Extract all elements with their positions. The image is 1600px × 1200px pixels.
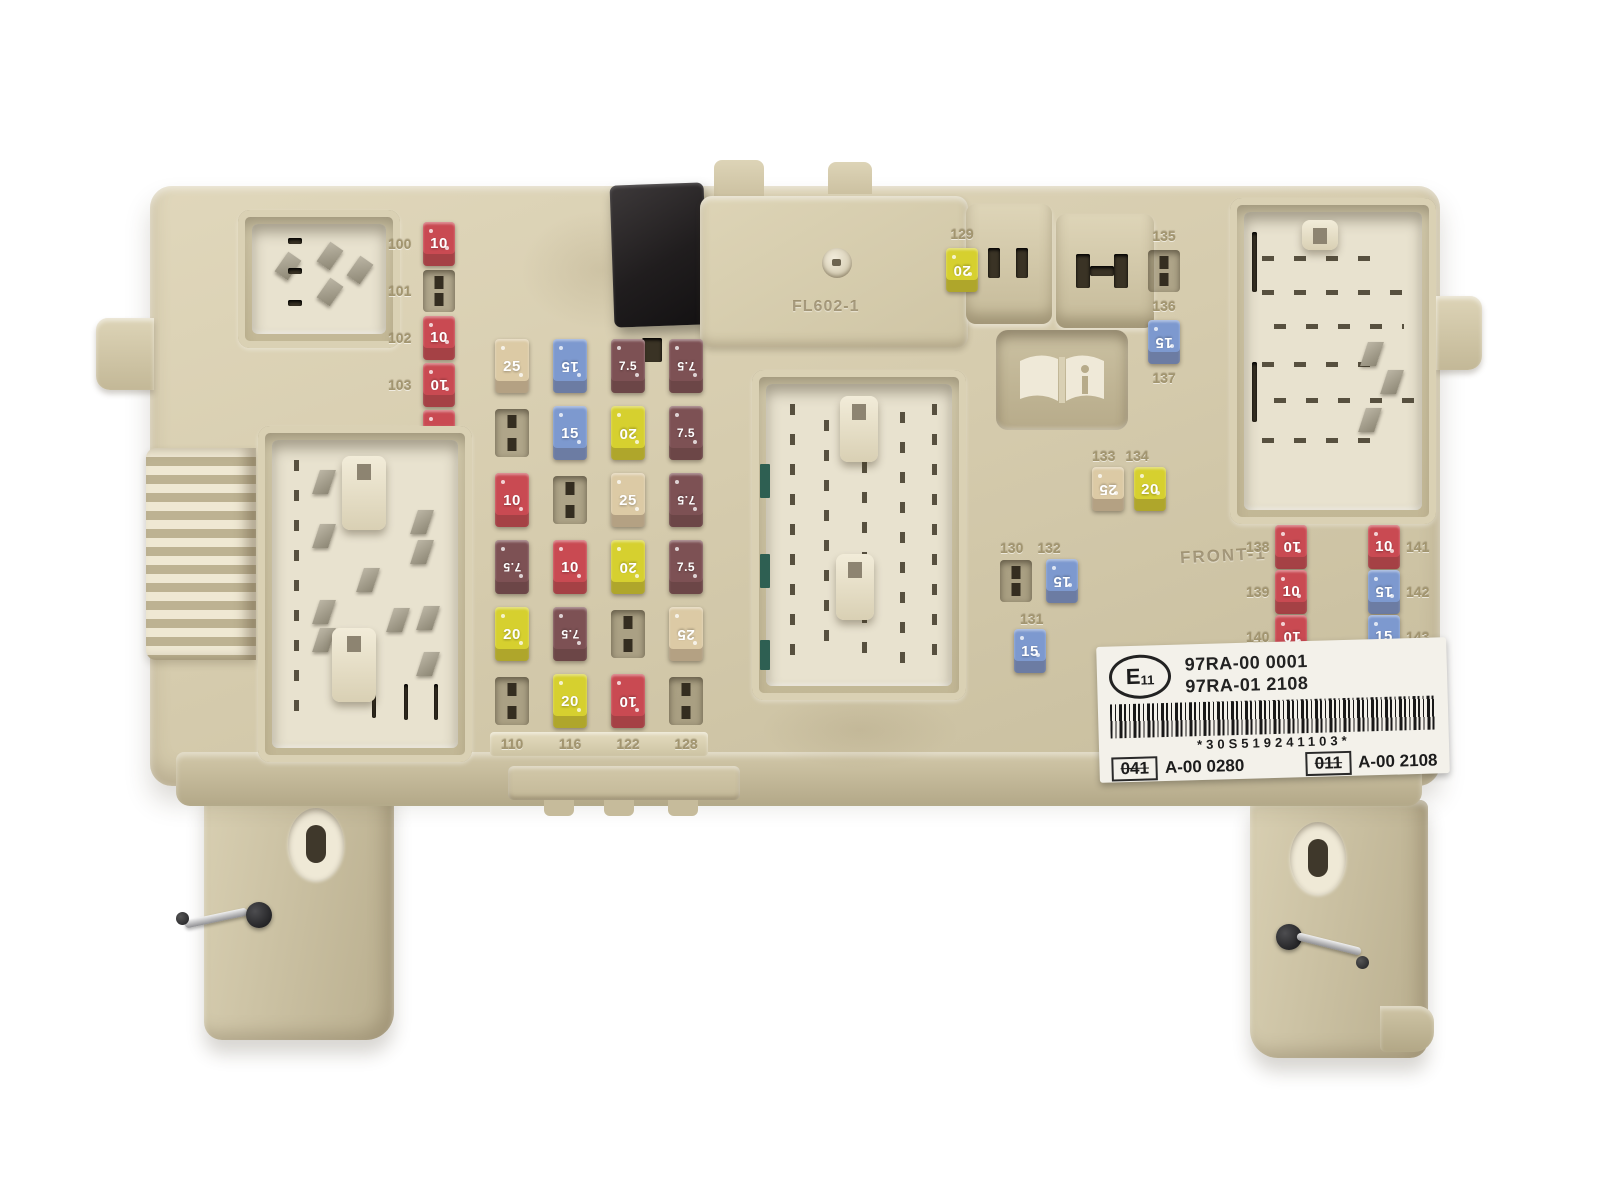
fuse-slot: 20 [606,405,650,461]
keyhole-slot [288,808,344,880]
terminal-pin-column [294,460,299,730]
relay-black-block [610,182,709,327]
fuse-slot: 101 [388,267,455,314]
fuse-7.5A: 7.5 [669,473,703,527]
fuse-mount: 15 [1014,629,1046,673]
socket-recess [1244,212,1422,510]
terminal-pin [386,608,410,632]
fuse-cluster-130-132: 130 132 15 131 15 [1000,540,1078,673]
fuse-10A: 10 [495,473,529,527]
terminal-pin-row [1262,256,1372,261]
code-value: A-00 0280 [1165,756,1245,778]
connector-socket-center [752,370,966,700]
fuse-15A: 15 [553,406,587,460]
pcb-edge [760,464,770,498]
fuse-slot: 139 10 [1246,569,1307,614]
terminal-pin [317,242,344,271]
fuse-slot: 102 10 [388,314,455,361]
fuse-slot: 7.5 [664,338,708,394]
terminal-slot [1016,248,1028,278]
fuse-20A: 20 [1134,467,1166,511]
fuse-number-label: 102 [388,330,418,346]
terminal-pin [312,470,336,494]
fuse-slot [606,606,650,662]
terminal-slot [1252,362,1257,422]
housing-foot [544,800,574,816]
terminal-pin [347,256,374,285]
molded-code-text: FL602-1 [792,298,859,316]
pcb-edge [760,554,770,588]
terminal-pin-column [900,412,905,664]
terminal-pin [410,510,434,534]
fuse-mount: 10 [423,363,455,407]
fuse-mount: 10 [1368,525,1400,569]
fuse-slot: 25 [490,338,534,394]
latch-tower [836,554,874,620]
fuse-10A: 10 [423,316,455,360]
mounting-bracket-left [204,786,394,1040]
terminal-slot [288,268,302,274]
fuse-cluster-135-137: 135 136 15 137 [1148,228,1180,386]
code-box: 041 [1111,756,1158,781]
fuse-15A: 15 [553,339,587,393]
connector-socket-left [258,426,472,762]
bracket-foot [1380,1006,1434,1052]
fuse-slot: 20 [606,539,650,595]
terminal-pin-row [1262,362,1372,367]
fuse-slot: 7.5 [664,539,708,595]
fuse-slot: 103 10 [388,361,455,408]
fuse-mount: 20 [1134,467,1166,511]
fuse-slot: 25 [606,472,650,528]
socket-recess [252,224,386,334]
fuse-number-label: 133 [1092,448,1115,464]
fuse-slot: 10 [548,539,592,595]
fuse-slot: 10 141 [1368,524,1429,569]
terminal-pin [356,568,380,592]
fuse-cluster-129: 129 20 [946,226,978,292]
empty-fuse-slot [1000,560,1032,602]
terminal-slot [434,684,438,720]
main-fuse-grid: 25157.57.515207.510257.57.510207.5207.52… [490,338,708,729]
terminal-pin [1380,370,1404,394]
connector-socket-top-left [238,210,400,348]
fuse-number-label: 131 [1020,611,1043,627]
empty-fuse-slot [669,677,703,725]
terminal-pin [1358,408,1382,432]
housing-foot [604,800,634,816]
metal-pin-shaft [184,907,248,928]
keyhole-slot [1290,822,1346,894]
terminal-slot [288,238,302,244]
terminal-pin-row [1262,438,1382,443]
fuse-7.5A: 7.5 [611,339,645,393]
fuse-20A: 20 [553,674,587,728]
fuse-cluster-100-104: 100 10 101 102 10 103 10 104 10 [388,220,455,455]
fuse-mount [1148,250,1180,292]
fuse-number-label: 130 [1000,540,1023,556]
keyhole-opening [1308,839,1328,877]
rivet-screw [822,248,852,278]
side-ear-left [96,318,154,390]
fuse-slot: 100 10 [388,220,455,267]
terminal-pin-column [932,404,937,668]
code-pair-right: 011 A-00 2108 [1305,748,1437,776]
top-tab [714,160,764,196]
terminal-slot [1114,254,1128,288]
latch-tower [332,628,376,702]
identification-sticker: E 11 97RA-00 0001 97RA-01 2108 *30S51924… [1096,637,1450,783]
fuse-25A: 25 [1092,467,1124,511]
fuse-number-label: 136 [1152,298,1175,314]
e-mark-number: 11 [1140,672,1154,687]
terminal-pin-row [1274,324,1404,329]
pcb-edge [760,640,770,670]
relay-socket-tower [1056,214,1154,328]
fuse-25A: 25 [611,473,645,527]
fuse-slot: 10 [606,673,650,729]
cover-plate: FL602-1 [700,196,968,348]
keyhole-opening [306,825,326,863]
metal-pin-shaft [1296,932,1362,956]
fuse-number-label: 122 [606,736,650,752]
empty-fuse-slot [423,270,455,312]
terminal-pin-column [862,432,867,660]
fuse-number-label: 135 [1152,228,1175,244]
fuse-slot: 10 [490,472,534,528]
fuse-slot [490,405,534,461]
empty-fuse-slot [495,677,529,725]
fuse-number-label: 101 [388,283,418,299]
fuse-slot [490,673,534,729]
housing-foot [668,800,698,816]
fuse-mount [423,270,455,312]
e-mark-letter: E [1125,664,1140,690]
code-value: A-00 2108 [1358,750,1438,772]
fuse-10A: 10 [1368,525,1400,569]
fuse-15A: 15 [1046,559,1078,603]
fuse-mount [1000,560,1032,602]
metal-pin-head [246,902,272,928]
fuse-7.5A: 7.5 [495,540,529,594]
fuse-10A: 10 [423,222,455,266]
fuse-slot: 25 [664,606,708,662]
fuse-number-label: 110 [490,736,534,752]
fuse-10A: 10 [1275,570,1307,614]
fuse-mount: 10 [1275,570,1307,614]
fuse-mount: 10 [1275,525,1307,569]
fuse-number-label: 137 [1152,370,1175,386]
code-pair-left: 041 A-00 0280 [1111,754,1244,782]
fuse-slot: 15 [548,405,592,461]
fuse-20A: 20 [495,607,529,661]
terminal-slot [1252,232,1257,292]
fuse-7.5A: 7.5 [669,406,703,460]
fuse-mount: 15 [1368,570,1400,614]
fuse-mount: 10 [423,316,455,360]
terminal-pin [416,652,440,676]
empty-fuse-slot [495,409,529,457]
terminal-pin [312,524,336,548]
fuse-7.5A: 7.5 [669,339,703,393]
fuse-25A: 25 [495,339,529,393]
relay-socket-tower [966,204,1052,324]
fuse-slot: 7.5 [664,472,708,528]
side-ear-right [1436,296,1482,370]
fuse-slot: 138 10 [1246,524,1307,569]
socket-recess [766,384,952,686]
embossed-part-number-plate [508,766,740,800]
terminal-pin-row [1274,398,1414,403]
fuse-slot: 7.5 [664,405,708,461]
latch-tower [342,456,386,530]
fuse-7.5A: 7.5 [669,540,703,594]
fuse-cluster-138-140: 138 10 139 10 140 10 [1246,524,1307,659]
socket-recess [272,440,458,748]
fuse-mount: 25 [1092,467,1124,511]
fuse-15A: 15 [1148,320,1180,364]
fuse-10A: 10 [1275,525,1307,569]
empty-fuse-slot [553,476,587,524]
fuse-cluster-133-134: 133 134 25 20 [1092,448,1166,511]
fuse-number-label: 103 [388,377,418,393]
fuse-7.5A: 7.5 [553,607,587,661]
fuse-slot [664,673,708,729]
fuse-mount: 15 [1046,559,1078,603]
fuse-number-label: 142 [1406,584,1429,600]
fuse-number-label: 132 [1037,540,1060,556]
metal-pin-tip [176,912,189,925]
terminal-slot [988,248,1000,278]
terminal-pin [275,252,302,281]
code-box: 011 [1305,751,1351,776]
fuse-slot: 20 [548,673,592,729]
terminal-pin [317,278,344,307]
fuse-slot: 20 [490,606,534,662]
empty-fuse-slot [1148,250,1180,292]
fuse-slot: 15 [548,338,592,394]
fusebox-product-photo: 100 10 101 102 10 103 10 104 10 FL602-1 … [0,0,1600,1200]
terminal-pin-column [790,404,795,668]
fuse-10A: 10 [423,363,455,407]
fuse-mount: 20 [946,248,978,292]
fuse-slot: 7.5 [606,338,650,394]
latch-tower [840,396,878,462]
fuse-number-label: 134 [1125,448,1148,464]
fuse-mount: 15 [1148,320,1180,364]
terminal-slot [1090,266,1114,276]
terminal-pin [1360,342,1384,366]
terminal-pin [410,540,434,564]
mounting-bracket-right [1250,800,1428,1058]
empty-fuse-slot [611,610,645,658]
part-number-line-2: 97RA-01 2108 [1185,672,1309,697]
edge-connector-comb [146,448,256,660]
fuse-number-label: 139 [1246,584,1269,600]
open-book-icon [1012,347,1112,413]
terminal-pin [312,600,336,624]
fuse-grid-column-labels: 110116122128 [490,732,708,756]
fuse-number-label: 116 [548,736,592,752]
manual-symbol-module [996,330,1128,430]
fuse-25A: 25 [669,607,703,661]
fuse-20A: 20 [946,248,978,292]
fuse-15A: 15 [1368,570,1400,614]
fuse-10A: 10 [611,674,645,728]
terminal-slot [1076,254,1090,288]
fuse-number-label: 141 [1406,539,1429,555]
terminal-slot [288,300,302,306]
fuse-slot: 7.5 [490,539,534,595]
connector-socket-right [1230,198,1436,524]
latch-tower [1302,220,1338,250]
fuse-mount: 10 [423,222,455,266]
fuse-10A: 10 [553,540,587,594]
fuse-number-label: 100 [388,236,418,252]
metal-pin-tip [1356,956,1369,969]
terminal-slot [404,684,408,720]
e-mark-oval-icon: E 11 [1108,654,1171,700]
fuse-20A: 20 [611,540,645,594]
fuse-slot [548,472,592,528]
fuse-number-label: 138 [1246,539,1269,555]
terminal-pin [416,606,440,630]
fuse-number-label: 128 [664,736,708,752]
fuse-20A: 20 [611,406,645,460]
fuse-slot: 15 142 [1368,569,1429,614]
terminal-pin-row [1262,290,1402,295]
fuse-number-label: 129 [950,226,973,242]
top-tab [828,162,872,194]
fuse-slot: 7.5 [548,606,592,662]
terminal-pin-column [824,420,829,660]
fuse-15A: 15 [1014,629,1046,673]
